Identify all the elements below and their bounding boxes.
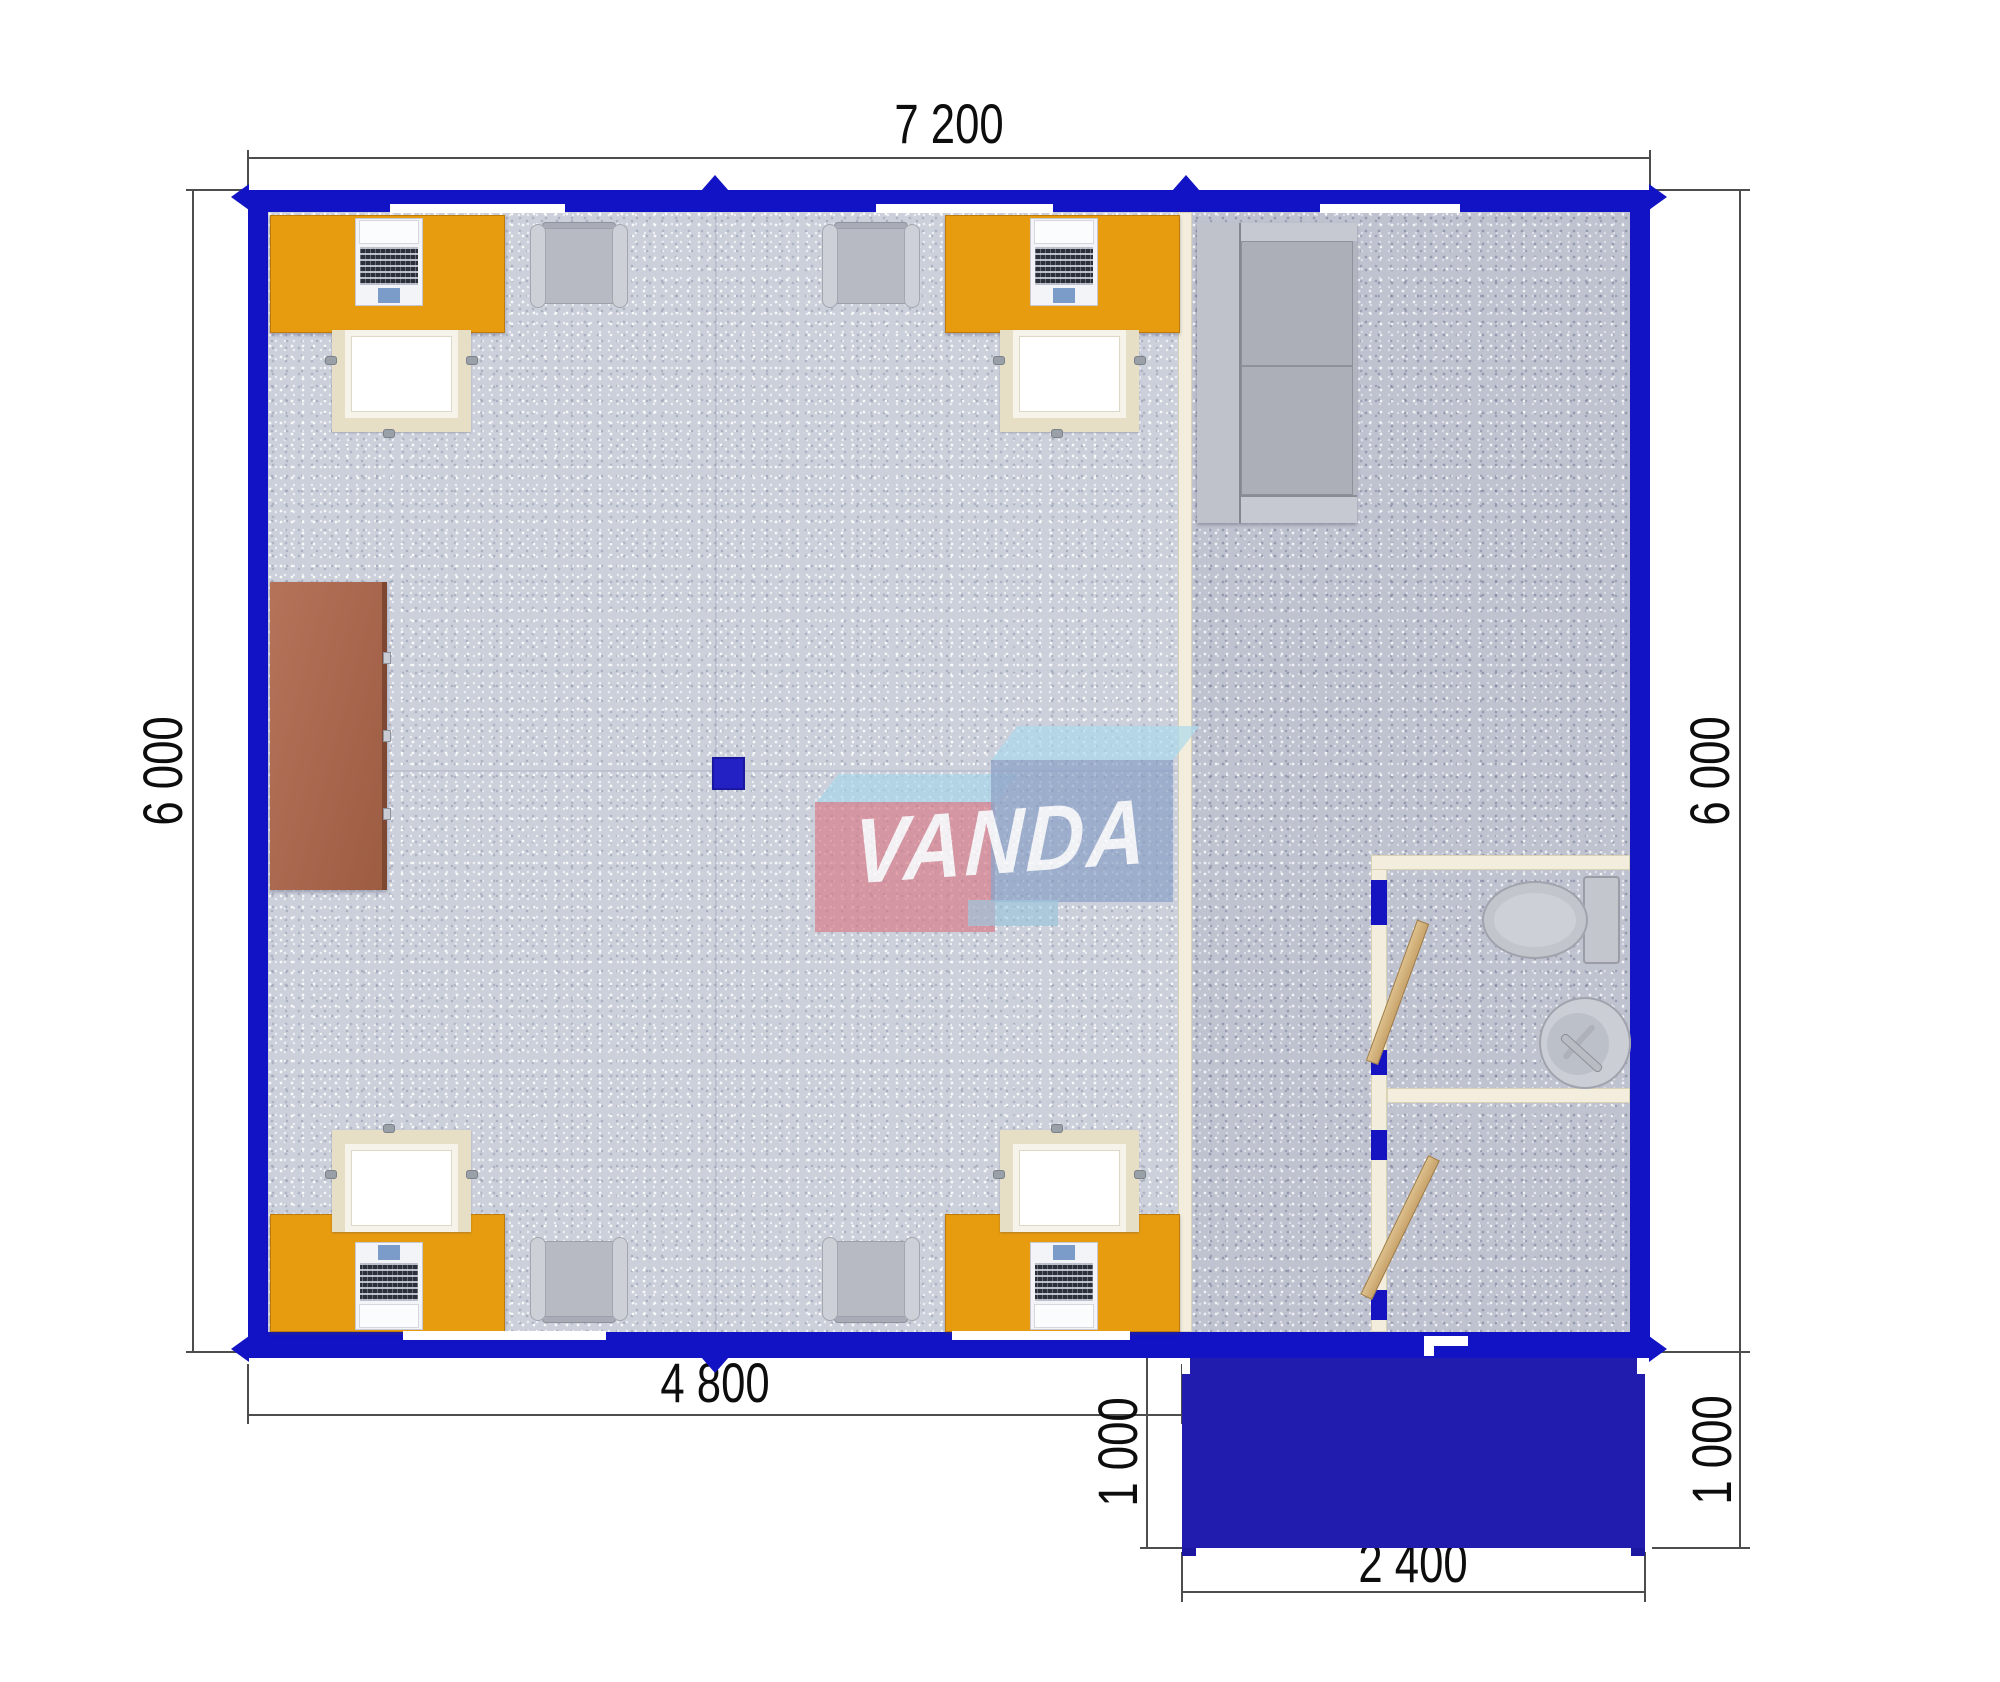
floor-plan: 7 200 6 000 6 000 1 000 4 800 1 000 2 40… <box>0 0 2000 1682</box>
armchair-seat <box>834 1241 908 1317</box>
desk <box>270 215 505 333</box>
armchair-armrest <box>530 224 546 308</box>
window <box>952 1331 1130 1340</box>
ceiling-lamp-icon <box>712 757 745 790</box>
chair-wheel <box>1134 356 1146 365</box>
logo-box-top-face <box>991 726 1200 760</box>
cabinet <box>270 582 387 890</box>
office-chair <box>332 1130 471 1232</box>
laptop-icon <box>355 218 423 306</box>
chair-wheel <box>1051 429 1063 438</box>
window <box>390 204 565 213</box>
chair-cushion <box>1019 1150 1120 1226</box>
sofa-seat-cushion <box>1241 241 1353 366</box>
armchair-armrest <box>904 1237 920 1321</box>
logo-wordmark: VANDA <box>839 785 1164 900</box>
bathroom-wall-top <box>1371 855 1630 870</box>
office-chair <box>1000 330 1139 432</box>
armchair <box>822 1235 920 1323</box>
desk <box>945 215 1180 333</box>
armchair <box>822 222 920 310</box>
cabinet-hinge <box>383 730 391 742</box>
module-joint-marker <box>1172 175 1200 191</box>
dim-tick <box>1652 1547 1750 1549</box>
chair-wheel <box>1051 1124 1063 1133</box>
entrance-porch <box>1182 1358 1645 1548</box>
office-chair <box>332 330 471 432</box>
laptop-touchpad <box>1053 288 1075 303</box>
armchair <box>530 222 628 310</box>
dim-right-height-label: 6 000 <box>1682 716 1738 825</box>
logo-blue-tab <box>968 900 1058 926</box>
cabinet-hinge <box>383 808 391 820</box>
dim-tick <box>247 1364 249 1424</box>
dim-bottom-line <box>248 1414 1182 1416</box>
module-joint-marker <box>701 175 729 191</box>
dim-porch-height-left-label: 1 000 <box>1090 1397 1146 1506</box>
laptop-keyboard <box>1035 247 1093 285</box>
armchair-armrest <box>612 224 628 308</box>
laptop-keyboard <box>360 247 418 285</box>
laptop-keyboard <box>360 1263 418 1301</box>
chair-wheel <box>466 356 478 365</box>
corner-marker <box>231 184 249 210</box>
laptop-touchpad <box>1053 1245 1075 1260</box>
sofa <box>1197 223 1357 523</box>
vanda-logo: VANDA <box>808 712 1188 952</box>
window <box>1320 204 1460 213</box>
dim-porch-height-right-label: 1 000 <box>1684 1395 1740 1504</box>
building-interior: VANDA <box>268 212 1630 1332</box>
armchair <box>530 1235 628 1323</box>
laptop-screen <box>1034 1304 1094 1328</box>
dim-tick <box>1649 150 1651 188</box>
chair-cushion <box>351 1150 452 1226</box>
armchair-armrest <box>822 1237 838 1321</box>
laptop-touchpad <box>378 288 400 303</box>
laptop-keyboard <box>1035 1263 1093 1301</box>
dim-top-line <box>248 157 1650 159</box>
dim-tick <box>1644 1552 1646 1602</box>
chair-wheel <box>325 356 337 365</box>
window <box>876 204 1053 213</box>
module-joint-marker <box>701 1357 729 1373</box>
laptop-icon <box>355 1242 423 1330</box>
door-frame <box>1371 880 1387 925</box>
dim-top-width-label: 7 200 <box>894 96 1003 152</box>
sofa-armrest <box>1241 495 1357 523</box>
armchair-seat <box>834 228 908 304</box>
laptop-touchpad <box>378 1245 400 1260</box>
toilet-tank <box>1583 876 1620 964</box>
chair-wheel <box>325 1170 337 1179</box>
sofa-seat-cushion <box>1241 366 1353 495</box>
laptop-screen <box>359 220 419 244</box>
corner-marker <box>231 1336 249 1362</box>
chair-cushion <box>1019 336 1120 412</box>
bathroom-wall-bottom <box>1387 1088 1630 1103</box>
window <box>403 1331 606 1340</box>
dim-tick <box>1140 1547 1182 1549</box>
chair-wheel <box>993 1170 1005 1179</box>
office-chair <box>1000 1130 1139 1232</box>
door-frame <box>1371 1130 1387 1160</box>
armchair-seat <box>542 228 616 304</box>
armchair-armrest <box>612 1237 628 1321</box>
porch-support <box>1631 1548 1645 1556</box>
dim-tick <box>247 150 249 188</box>
porch-edge-notch <box>1182 1358 1190 1374</box>
sofa-armrest <box>1241 223 1357 241</box>
corner-marker <box>1649 1336 1667 1362</box>
laptop-icon <box>1030 218 1098 306</box>
corner-marker <box>1649 184 1667 210</box>
laptop-screen <box>359 1304 419 1328</box>
sink-icon <box>1539 997 1631 1089</box>
cabinet-hinge <box>383 652 391 664</box>
toilet-icon <box>1482 881 1588 959</box>
chair-cushion <box>351 336 452 412</box>
dim-tick <box>1181 1552 1183 1602</box>
porch-edge-notch <box>1637 1358 1645 1374</box>
laptop-screen <box>1034 220 1094 244</box>
entry-door-threshold <box>1424 1336 1434 1356</box>
chair-wheel <box>993 356 1005 365</box>
porch-support <box>1182 1548 1196 1556</box>
chair-wheel <box>383 1124 395 1133</box>
laptop-icon <box>1030 1242 1098 1330</box>
armchair-armrest <box>822 224 838 308</box>
chair-wheel <box>466 1170 478 1179</box>
dim-left-height-label: 6 000 <box>135 716 191 825</box>
chair-wheel <box>383 429 395 438</box>
sofa-back <box>1197 223 1241 523</box>
building-outline: VANDA <box>248 190 1650 1358</box>
armchair-armrest <box>530 1237 546 1321</box>
chair-wheel <box>1134 1170 1146 1179</box>
armchair-armrest <box>904 224 920 308</box>
armchair-seat <box>542 1241 616 1317</box>
